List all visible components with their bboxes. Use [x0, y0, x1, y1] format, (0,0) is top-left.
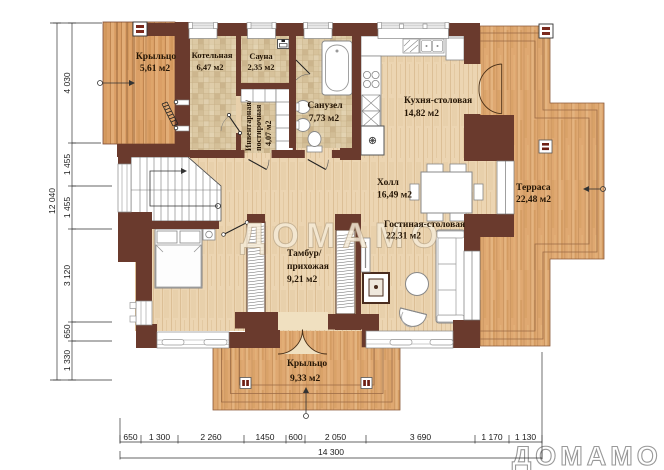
svg-text:прихожая: прихожая	[287, 262, 329, 272]
svg-text:7,73 м2: 7,73 м2	[309, 114, 339, 124]
svg-text:1450: 1450	[256, 432, 275, 442]
svg-text:14 300: 14 300	[318, 447, 344, 457]
svg-text:ДОМАМО: ДОМАМО	[512, 441, 662, 470]
svg-text:постирочная: постирочная	[254, 104, 263, 151]
svg-text:650: 650	[62, 324, 72, 338]
svg-text:9,21 м2: 9,21 м2	[287, 275, 317, 285]
svg-text:1 330: 1 330	[62, 350, 72, 372]
svg-text:1 300: 1 300	[149, 432, 171, 442]
svg-text:600: 600	[288, 432, 302, 442]
svg-text:5,61 м2: 5,61 м2	[140, 64, 170, 74]
svg-text:4,07 м2: 4,07 м2	[264, 121, 273, 146]
svg-text:6,47 м2: 6,47 м2	[196, 62, 223, 72]
svg-text:2 260: 2 260	[200, 432, 222, 442]
svg-text:2,35 м2: 2,35 м2	[247, 62, 274, 72]
svg-text:1 130: 1 130	[515, 432, 537, 442]
svg-text:Крыльцо: Крыльцо	[136, 52, 176, 62]
svg-text:Сауна: Сауна	[249, 51, 273, 61]
svg-text:14,82 м2: 14,82 м2	[404, 109, 439, 119]
svg-text:Гостиная-столовая: Гостиная-столовая	[384, 220, 465, 230]
svg-text:Кухня-столовая: Кухня-столовая	[404, 96, 472, 106]
svg-text:9,33 м2: 9,33 м2	[290, 374, 320, 384]
svg-text:Котельная: Котельная	[192, 50, 233, 60]
svg-text:4 030: 4 030	[62, 72, 72, 94]
svg-text:Тамбур/: Тамбур/	[287, 248, 322, 259]
svg-text:Крыльцо: Крыльцо	[287, 359, 327, 369]
svg-text:1 170: 1 170	[481, 432, 503, 442]
svg-text:22,48 м2: 22,48 м2	[516, 195, 551, 205]
svg-text:Терраса: Терраса	[516, 183, 551, 193]
svg-text:2 050: 2 050	[325, 432, 347, 442]
svg-text:650: 650	[123, 432, 137, 442]
svg-text:1 455: 1 455	[62, 197, 72, 219]
svg-text:16,49 м2: 16,49 м2	[377, 191, 412, 201]
svg-text:12 040: 12 040	[47, 188, 57, 214]
svg-text:22,31 м2: 22,31 м2	[386, 232, 421, 242]
svg-text:3 120: 3 120	[62, 265, 72, 287]
svg-text:Холл: Холл	[377, 178, 400, 188]
svg-text:Инвентарная/: Инвентарная/	[244, 99, 253, 151]
svg-text:Санузел: Санузел	[307, 101, 343, 111]
svg-text:1 455: 1 455	[62, 154, 72, 176]
svg-text:3 690: 3 690	[410, 432, 432, 442]
